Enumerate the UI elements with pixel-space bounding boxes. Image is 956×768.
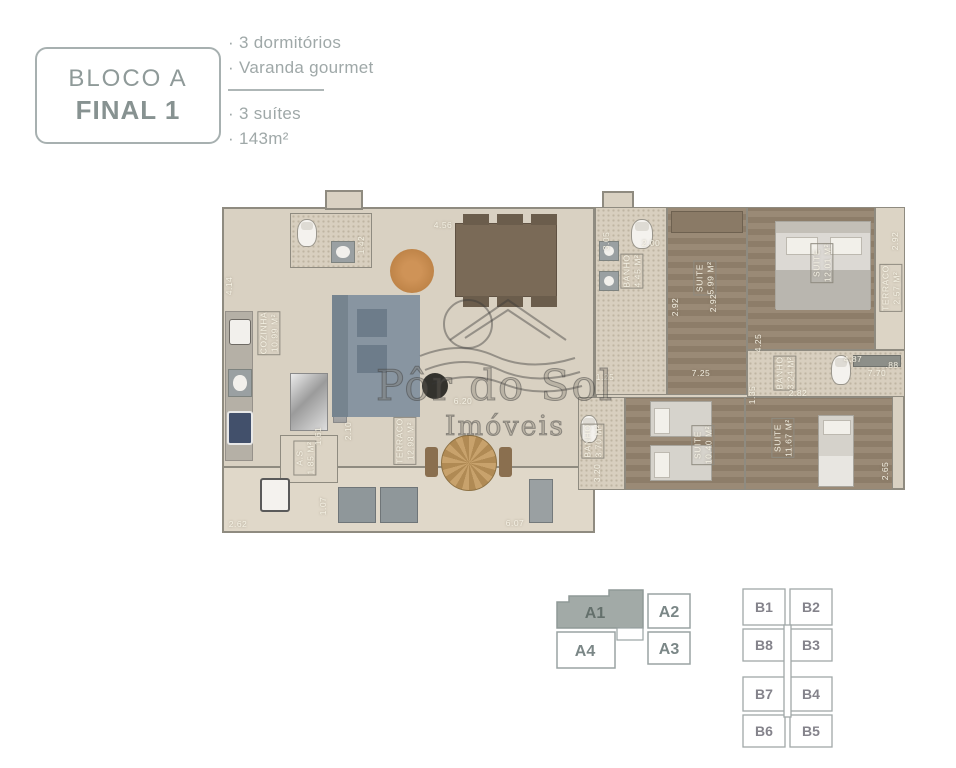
dimension-label: 4.56 [434,220,453,230]
dimension-label: 2.65 [880,462,890,481]
keyplan-block-b: B1 B2 B8 B3 B7 B4 B6 B5 [740,585,835,750]
room-label: COZINHA 10.99 M² [257,311,280,355]
dimension-label: 1.07 [318,497,328,516]
final-label: FINAL 1 [76,95,181,126]
feature-list: · 3 dormitórios · Varanda gourmet · 3 su… [228,30,448,151]
feature-divider [228,89,324,91]
room-label: BANHO 4.45 M² [620,253,643,288]
dimension-label: 6.07 [506,518,525,528]
room-label: TERRACO 2.57 M² [879,264,902,312]
core-corridor-shape [784,625,791,717]
dimension-label: 2.92 [708,294,718,313]
room-label: SUITE 12.01 M² [810,243,833,283]
dimension-label: .88 [885,360,898,370]
dimension-label: 1.35 [747,386,757,405]
keyplan-block-a: A1 A2 A4 A3 [553,588,693,673]
room-label: BANHO 3.24 M² [773,355,796,390]
feature-item: · 3 dormitórios [228,30,448,55]
unit-b8-label[interactable]: B8 [755,637,773,653]
feature-item: · Varanda gourmet [228,55,448,80]
watermark-text-2: Imóveis [415,411,595,442]
floorplan: COZINHA 10.99 M²BANHO 4.45 M²SUITE 5.99 … [185,183,920,583]
unit-a1-label[interactable]: A1 [585,605,606,622]
unit-a4-label[interactable]: A4 [575,643,596,660]
dimension-label: 7.25 [692,368,711,378]
dimension-label: 3.05 [601,232,611,251]
dimension-label: 1.61 [313,427,323,446]
dimension-label: 2.82 [789,388,808,398]
room-label: TERRACO 12.98 M² [393,417,416,465]
room-label: SUITE 10.40 M² [691,425,714,465]
room-label: SUITE 5.99 M² [693,260,716,295]
dimension-label: 2.92 [890,232,900,251]
dimension-label: 4.87 [844,354,863,364]
dimension-label: 4.25 [753,334,763,353]
watermark-text-1: Pôr do Sol [365,361,625,410]
unit-a2-label[interactable]: A2 [659,604,680,621]
feature-item: · 3 suítes [228,101,448,126]
unit-b2-label[interactable]: B2 [802,599,820,615]
dimension-label: 2.10 [343,422,353,441]
dimension-label: 2.00 [642,238,661,248]
dimension-label: 3.20 [592,464,602,483]
unit-b3-label[interactable]: B3 [802,637,820,653]
unit-a3-label[interactable]: A3 [659,641,680,658]
unit-b6-label[interactable]: B6 [755,723,773,739]
unit-b4-label[interactable]: B4 [802,686,820,702]
unit-b7-label[interactable]: B7 [755,686,773,702]
feature-item: · 143m² [228,126,448,151]
dimension-label: 7.70 [868,368,887,378]
core-shape [617,628,643,640]
dimension-label: 4.14 [224,277,234,296]
dimension-label: 1.42 [356,236,366,255]
unit-badge: BLOCO A FINAL 1 [35,47,221,144]
room-label: A.S 1.85 M² [293,440,316,475]
dimension-label: 2.62 [229,519,248,529]
unit-b1-label[interactable]: B1 [755,599,773,615]
room-label: SUITE 11.67 M² [771,418,794,458]
page: BLOCO A FINAL 1 · 3 dormitórios · Varand… [0,0,956,768]
block-label: BLOCO A [68,65,187,93]
dimension-label: 2.92 [670,298,680,317]
unit-b5-label[interactable]: B5 [802,723,820,739]
